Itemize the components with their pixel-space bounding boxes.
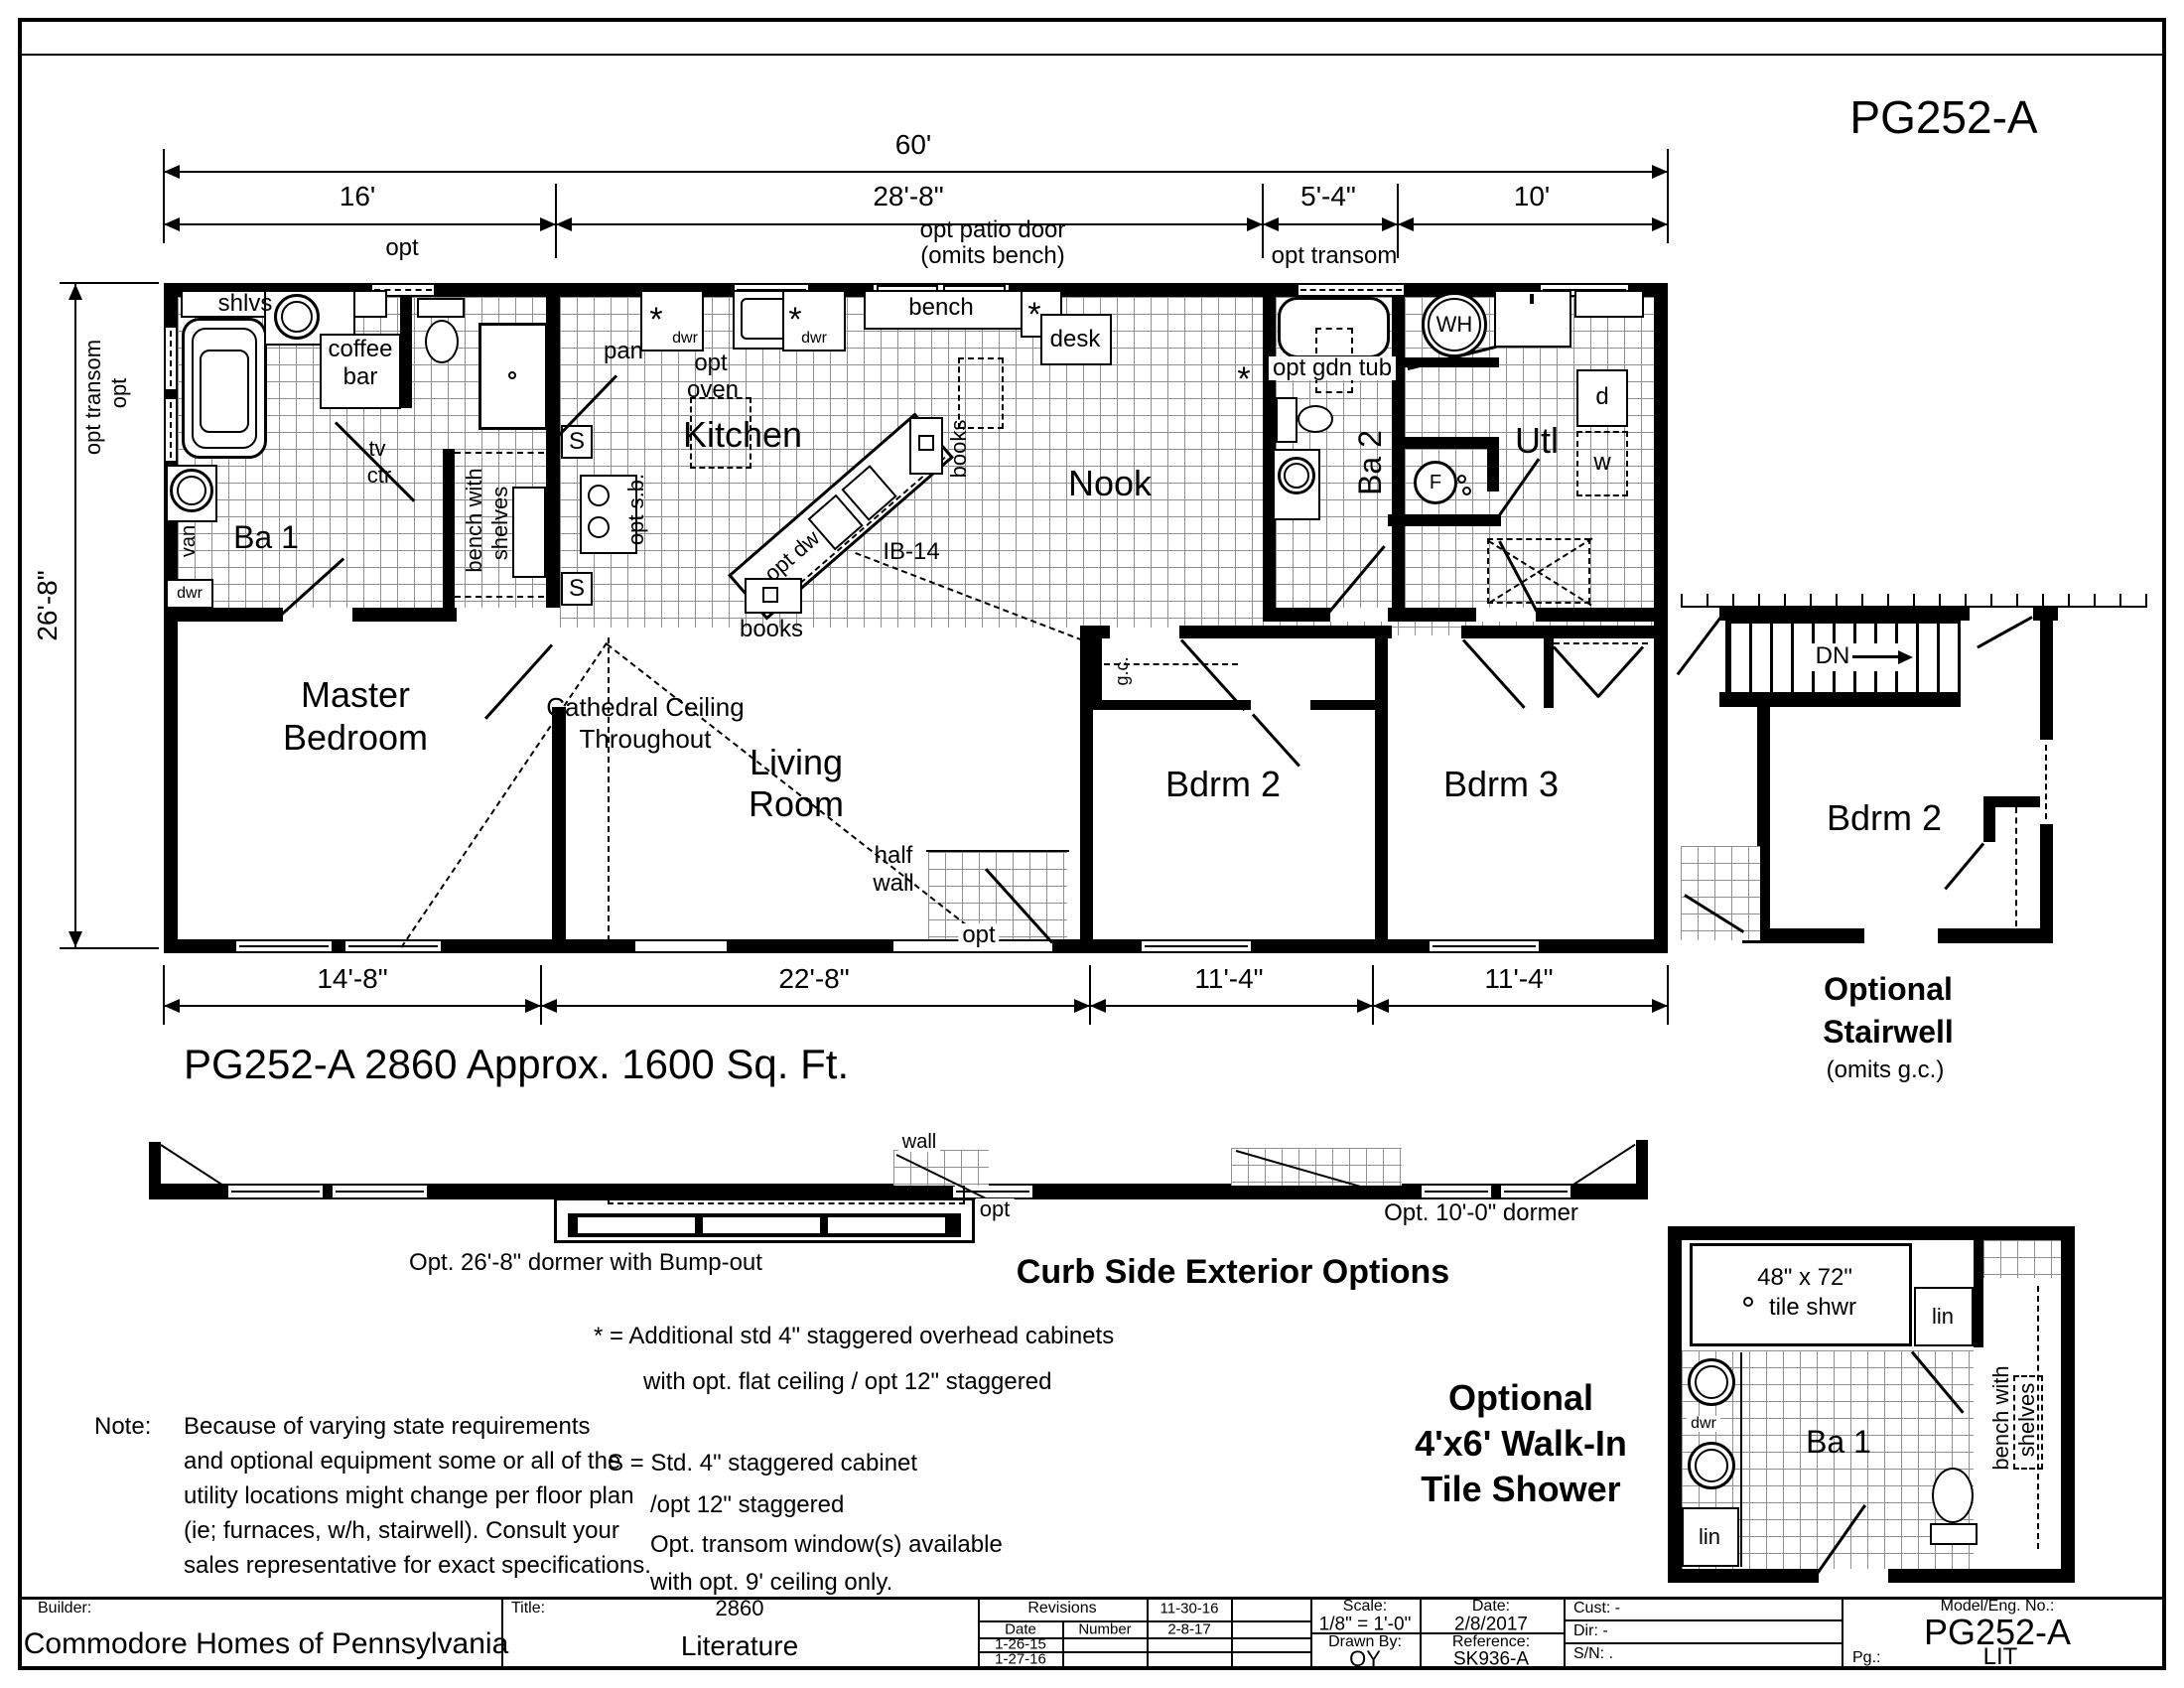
revisions-date-label: Date <box>1005 1622 1036 1637</box>
revision-date-1: 11-30-16 <box>1160 1602 1219 1617</box>
wall <box>1405 437 1489 449</box>
transom-top-label: opt transom <box>1272 244 1398 268</box>
wall <box>1719 692 1961 707</box>
dormer-window <box>703 1217 820 1233</box>
patio-door-label-2: (omits bench) <box>920 244 1064 268</box>
opt-gdn-tub-label: opt gdn tub <box>1269 356 1396 380</box>
dryer-label: d <box>1595 385 1608 409</box>
elev-dormer-left-label: Opt. 26'-8" dormer with Bump-out <box>409 1251 762 1275</box>
wall <box>1487 437 1499 492</box>
note-label: Note: <box>94 1415 151 1439</box>
scale-value: 1/8" = 1'-0" <box>1319 1616 1412 1634</box>
dormer-window <box>828 1217 945 1233</box>
opt-window-label: opt <box>385 236 418 260</box>
plan-title: PG252-A 2860 Approx. 1600 Sq. Ft. <box>184 1044 849 1085</box>
customer-field: Cust: - <box>1573 1601 1620 1617</box>
dim-line <box>164 223 556 225</box>
door-opening <box>635 941 727 951</box>
dim-line <box>1373 1005 1668 1007</box>
tile-shwr-label-2: tile shwr <box>1769 1296 1856 1320</box>
revisions-grid-line <box>1231 1597 1233 1666</box>
sink-bowl <box>1284 463 1309 489</box>
dim-line <box>1398 223 1668 225</box>
shelf <box>1574 290 1644 318</box>
bookcase-inner <box>762 587 778 603</box>
wall <box>1719 606 1970 621</box>
dim-11-4-a: 11'-4" <box>1194 965 1263 993</box>
ba2-label: Ba 2 <box>1354 430 1386 495</box>
wall <box>1388 608 1476 622</box>
window-line <box>1433 945 1536 947</box>
elev-opt-label: opt <box>976 1198 1015 1220</box>
elev-dormer-right-label: Opt. 10'-0" dormer <box>1380 1201 1582 1225</box>
vanity-edge <box>1740 1352 1742 1567</box>
revision-date-2: 2-8-17 <box>1167 1622 1210 1637</box>
sink-bowl <box>177 476 206 505</box>
s-note-line-4: with opt. 9' ceiling only. <box>650 1571 892 1595</box>
dim-10: 10' <box>1514 183 1551 211</box>
serial-field: S/N: . <box>1573 1646 1613 1662</box>
title-block-divider <box>1310 1597 1312 1666</box>
builder-label: Builder: <box>38 1601 91 1617</box>
dim-tick <box>163 149 165 243</box>
dormer-dash-outline <box>608 1185 965 1204</box>
burner <box>588 485 610 506</box>
dim-tick <box>1372 965 1374 1025</box>
dim-tick <box>1089 965 1091 1025</box>
page-value: LIT <box>1983 1645 2018 1669</box>
dir-field: Dir: - <box>1573 1623 1608 1639</box>
dn-arrow-line <box>1852 655 1898 658</box>
closet-hatch <box>1983 1240 2061 1278</box>
dim-tick <box>555 184 557 258</box>
cathedral-label-2: Throughout <box>580 726 712 752</box>
ba1-detail-label: Ba 1 <box>1806 1426 1871 1458</box>
elev-wall-label: wall <box>898 1132 940 1152</box>
lin-label-1: lin <box>1932 1306 1954 1328</box>
dwr-k2-label: dwr <box>801 331 827 347</box>
window-dash <box>2045 745 2047 819</box>
stair-caption-2: Stairwell <box>1823 1016 1954 1048</box>
wall <box>1983 796 1995 842</box>
half-wall-label-1: half <box>875 844 913 868</box>
wall <box>1668 1226 1682 1583</box>
bench-shelves-label-2: shelves <box>489 487 511 561</box>
master-label-2: Bedroom <box>283 720 428 756</box>
window-dash <box>170 331 172 386</box>
coffee-bar-label-2: bar <box>343 365 378 389</box>
window-line <box>239 945 329 947</box>
wall <box>1263 608 1330 622</box>
star-3: * <box>1027 298 1040 332</box>
dim-tick <box>60 947 159 949</box>
sheet-number: PG252-A <box>1849 94 2037 140</box>
s-box-label-2: S <box>569 577 585 601</box>
stair-bdrm2-label: Bdrm 2 <box>1827 800 1942 836</box>
opt-fridge-outline <box>958 357 1004 429</box>
living-label-1: Living <box>750 745 843 780</box>
wall <box>1392 297 1405 608</box>
furnace-pipe <box>1457 475 1466 484</box>
stair-window-hatch <box>1231 1148 1402 1186</box>
star-1: * <box>649 303 662 337</box>
dim-11-4-b: 11'-4" <box>1484 965 1553 993</box>
door-opening <box>1819 1569 1888 1583</box>
shower-drain <box>508 371 516 379</box>
drawing-number: 2860 <box>716 1598 764 1619</box>
note-line-5: sales representative for exact specifica… <box>184 1554 651 1578</box>
bench-label: bench <box>908 296 973 320</box>
wall <box>1092 700 1251 710</box>
stair-caption-3: (omits g.c.) <box>1827 1058 1945 1082</box>
window-dash <box>1300 289 1402 291</box>
tile-shwr-label-1: 48" x 72" <box>1757 1266 1852 1290</box>
porch-hatch <box>893 1150 989 1186</box>
opt-sb-label: opt s.b. <box>625 474 647 545</box>
title-label: Title: <box>511 1601 545 1617</box>
note-line-2: and optional equipment some or all of th… <box>184 1450 620 1474</box>
builder-name: Commodore Homes of Pennsylvania <box>24 1629 509 1659</box>
furnace-label: F <box>1430 473 1441 492</box>
title-block-divider <box>1564 1597 1566 1666</box>
van-label: van <box>179 525 199 557</box>
burner <box>588 516 610 538</box>
dim-tick <box>540 965 542 1025</box>
desk-label: desk <box>1050 328 1101 352</box>
door-opening <box>1476 608 1536 622</box>
elev-heading: Curb Side Exterior Options <box>1017 1255 1449 1289</box>
wall <box>1654 283 1668 953</box>
star-4: * <box>1237 362 1250 396</box>
left-transom-label: opt transom <box>82 340 104 455</box>
wall <box>1461 626 1668 638</box>
date-value: 2/8/2017 <box>1454 1616 1528 1634</box>
wall <box>1995 796 2040 807</box>
dim-tick <box>163 965 165 1025</box>
dim-tick <box>1262 184 1264 258</box>
toilet-tank <box>1276 397 1297 443</box>
wall <box>2061 1226 2075 1583</box>
kitchen-label: Kitchen <box>683 417 802 453</box>
dim-16: 16' <box>340 183 376 211</box>
title-block-divider <box>1842 1597 1843 1666</box>
wall <box>546 297 560 608</box>
opt-oven-label-2: oven <box>687 378 739 402</box>
elevation-window-line <box>956 1191 1029 1193</box>
star-note-line-1: * = Additional std 4" staggered overhead… <box>594 1325 1114 1348</box>
left-opt-label: opt <box>108 378 130 409</box>
washer-label: w <box>1593 451 1610 475</box>
dim-28-8: 28'-8" <box>873 183 943 211</box>
dim-tick <box>1667 965 1669 1025</box>
nook-label: Nook <box>1068 466 1152 501</box>
wall <box>1388 514 1501 526</box>
sink-bowl <box>1695 1449 1728 1482</box>
wall <box>1668 1226 2075 1240</box>
shower-caption-2: 4'x6' Walk-In <box>1415 1426 1627 1462</box>
dim-overall: 60' <box>895 131 932 159</box>
dwr-ba1-label: dwr <box>177 586 203 602</box>
dwr-k1-label: dwr <box>672 331 698 347</box>
half-wall-edge <box>926 850 1069 852</box>
sink-bowl <box>281 301 313 333</box>
drawing-sheet: PG252-A <box>0 0 2184 1688</box>
dim-22-8: 22'-8" <box>778 965 849 993</box>
s-note-line-3: Opt. transom window(s) available <box>650 1533 1003 1557</box>
master-label-1: Master <box>301 677 410 713</box>
utl-label: Utl <box>1515 423 1559 459</box>
shower-caption-3: Tile Shower <box>1421 1472 1620 1507</box>
bathtub-basin <box>200 350 249 433</box>
closet-track-dash <box>1554 642 1648 644</box>
ceiling-ridge-dash <box>608 637 610 941</box>
toilet <box>1932 1468 1974 1523</box>
pan-label: pan <box>604 340 643 363</box>
revision-date-3: 1-26-15 <box>995 1637 1046 1652</box>
elevation-window-line <box>336 1191 424 1193</box>
stair-caption-1: Optional <box>1824 973 1953 1005</box>
door-opening <box>283 608 352 622</box>
wall <box>443 449 455 608</box>
revision-date-4: 1-27-16 <box>995 1652 1046 1667</box>
cell-divider <box>1564 1619 1843 1621</box>
bench-shelves-label-1: bench with <box>464 468 485 572</box>
sheet-border-inner-top <box>22 54 2162 56</box>
toilet-tank <box>417 298 465 318</box>
dim-line <box>1090 1005 1373 1007</box>
dim-26-8: 26'-8" <box>34 570 62 640</box>
revisions-number-label: Number <box>1078 1622 1131 1637</box>
drawn-by-value: OY <box>1349 1648 1381 1670</box>
star-note-line-2: with opt. flat ceiling / opt 12" stagger… <box>643 1370 1051 1394</box>
date-label: Date: <box>1472 1599 1510 1615</box>
cell-divider <box>1564 1642 1843 1644</box>
reference-value: SK936-A <box>1453 1650 1529 1669</box>
books-label-h: books <box>740 618 803 641</box>
star-2: * <box>788 303 801 337</box>
wall <box>1375 638 1388 939</box>
wall <box>1974 1226 1983 1347</box>
closet-door-dash <box>2015 807 2017 926</box>
cabinet-handle <box>1530 294 1534 304</box>
lin-label-2: lin <box>1699 1526 1720 1548</box>
door-opening <box>1864 928 1938 943</box>
ib-14-label: IB-14 <box>883 540 939 564</box>
toilet <box>1297 405 1333 433</box>
dn-label: DN <box>1816 644 1850 668</box>
gc-label: g.c. <box>1113 656 1131 685</box>
patio-door-label-1: opt patio door <box>920 218 1066 242</box>
tv-ctr-label-2: ctr <box>367 465 391 487</box>
cathedral-label-1: Cathedral Ceiling <box>546 694 744 720</box>
scale-label: Scale: <box>1343 1599 1387 1615</box>
wall <box>1310 700 1375 710</box>
tv-ctr-label-1: tv <box>368 438 385 460</box>
coffee-bar-label-1: coffee <box>329 338 393 361</box>
shower-caption-1: Optional <box>1448 1380 1593 1416</box>
elevation-window-line <box>1425 1191 1488 1193</box>
dim-line <box>1263 223 1398 225</box>
elevation-window-line <box>231 1191 320 1193</box>
page-label: Pg.: <box>1852 1650 1880 1666</box>
bookcase-inner <box>918 435 934 451</box>
dim-tick <box>1667 149 1669 243</box>
s-box-label-1: S <box>569 430 585 454</box>
porch-hatch <box>1681 846 1760 940</box>
window-dash <box>170 402 172 458</box>
dim-5-4: 5'-4" <box>1300 183 1356 211</box>
bench-detail-label-1: bench with <box>1990 1365 2012 1470</box>
bdrm3-label: Bdrm 3 <box>1443 767 1559 802</box>
shower-head <box>1743 1297 1753 1307</box>
wall <box>1179 626 1392 638</box>
dwr-shwr-label: dwr <box>1687 1416 1720 1432</box>
note-line-3: utility locations might change per floor… <box>184 1484 634 1508</box>
bench-room-dash <box>455 452 544 454</box>
opt-porch-label: opt <box>958 923 999 947</box>
revisions-grid-line <box>1147 1597 1149 1666</box>
wall <box>1080 626 1110 638</box>
dim-14-8: 14'-8" <box>317 965 387 993</box>
wh-label: WH <box>1436 314 1473 336</box>
half-wall-label-2: wall <box>873 872 913 896</box>
dim-line <box>74 284 76 947</box>
wall <box>400 297 412 408</box>
bench-shelf <box>512 487 546 578</box>
opt-oven-label-1: opt <box>694 352 727 375</box>
dim-line <box>556 223 1263 225</box>
window-line <box>348 945 438 947</box>
dim-line <box>541 1005 1090 1007</box>
drawing-title: Literature <box>681 1632 798 1660</box>
bdrm2-label: Bdrm 2 <box>1165 767 1281 802</box>
window-line <box>1145 945 1248 947</box>
sink-bowl <box>1695 1365 1728 1399</box>
bench-room-dash <box>455 596 544 598</box>
wall <box>1536 608 1654 622</box>
dn-arrow-head <box>1898 650 1913 664</box>
s-note-line-2: /opt 12" staggered <box>650 1493 844 1517</box>
living-label-2: Room <box>749 786 844 822</box>
dormer-window <box>578 1217 695 1233</box>
elevation-post <box>149 1142 161 1186</box>
revisions-grid-line <box>1062 1620 1064 1666</box>
furnace-pipe <box>1462 487 1471 495</box>
s-note-line-1: S = Std. 4" staggered cabinet <box>608 1452 917 1476</box>
wall <box>1544 638 1554 708</box>
bench-detail-label-2: shelves <box>2016 1383 2038 1458</box>
revisions-header: Revisions <box>1027 1601 1096 1617</box>
elevation-post <box>1636 1140 1648 1186</box>
shlvs-label: shlvs <box>218 292 273 316</box>
toilet-tank <box>1930 1523 1978 1545</box>
note-line-4: (ie; furnaces, w/h, stairwell). Consult … <box>184 1519 619 1543</box>
title-block-divider <box>978 1597 980 1666</box>
title-block-divider <box>1420 1597 1422 1666</box>
dim-tick <box>60 282 159 284</box>
books-label-v: books <box>948 420 970 479</box>
toilet <box>425 320 459 363</box>
wall <box>552 707 566 939</box>
elevation-window-line <box>1504 1191 1568 1193</box>
door-opening <box>1330 608 1388 622</box>
note-line-1: Because of varying state requirements <box>184 1415 591 1439</box>
dim-line <box>164 171 1668 173</box>
ba1-label: Ba 1 <box>233 521 299 553</box>
dim-line <box>164 1005 541 1007</box>
